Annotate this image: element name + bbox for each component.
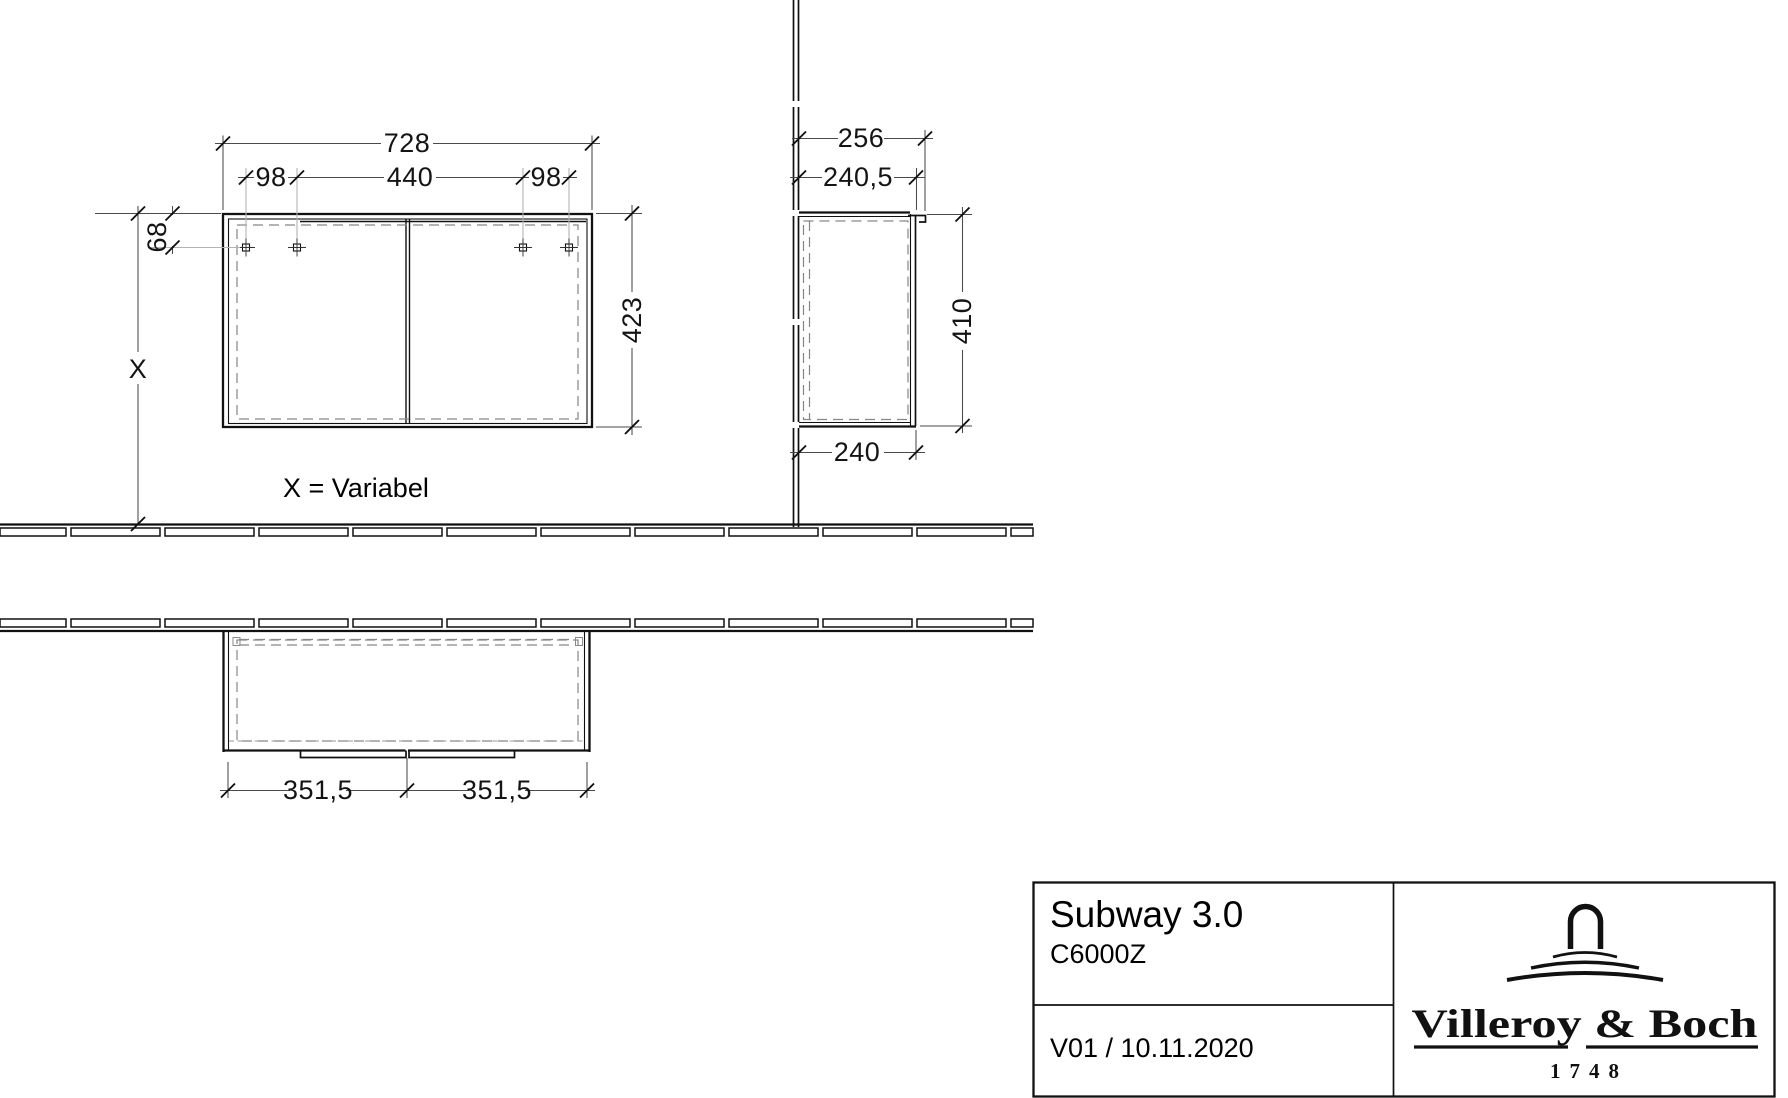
model-number: C6000Z xyxy=(1050,939,1146,969)
front-hidden-carcass xyxy=(237,225,578,419)
dim-label-door-left: 351,5 xyxy=(283,775,353,805)
front-door-gap xyxy=(406,219,410,424)
side-carcass-edges xyxy=(799,214,911,426)
wall-hatch-segments xyxy=(0,619,1033,627)
version-date: V01 / 10.11.2020 xyxy=(1050,1033,1254,1063)
plan-cabinet-outline xyxy=(224,632,590,752)
brand-logo: Villeroy & Boch 1748 xyxy=(1412,907,1759,1083)
mounting-holes xyxy=(237,239,578,257)
dim-label-side-height: 410 xyxy=(947,298,977,345)
wall-line xyxy=(794,0,799,527)
side-carcass-top-bottom xyxy=(799,213,916,427)
dim-label-hole-right: 98 xyxy=(530,162,561,192)
logo-ripple-medium-icon xyxy=(1531,962,1639,968)
dim-label-depth-carcass: 240 xyxy=(834,437,881,467)
title-block: Subway 3.0 C6000Z V01 / 10.11.2020 Ville… xyxy=(1034,883,1775,1097)
side-hidden-carcass xyxy=(804,221,909,420)
plan-hidden-carcass xyxy=(237,640,578,741)
dim-label-width-total: 728 xyxy=(384,128,431,158)
front-cabinet-outline xyxy=(223,214,592,427)
plan-view: 351,5 351,5 xyxy=(220,632,595,805)
hole-crosshairs xyxy=(237,239,578,257)
front-dimension-ticks xyxy=(131,137,639,532)
dim-label-height: 423 xyxy=(617,297,647,344)
plan-rail-end-right xyxy=(576,638,583,646)
front-door-outline xyxy=(229,219,588,424)
brand-year: 1748 xyxy=(1550,1059,1628,1083)
wall-line-plan xyxy=(0,619,1033,631)
brand-name: Villeroy & Boch xyxy=(1412,1001,1758,1046)
variable-height-note: X = Variabel xyxy=(283,473,429,503)
floor-hatch-segments xyxy=(0,528,1033,536)
floor-line-elevation xyxy=(0,525,1033,537)
dim-label-hole-top: 68 xyxy=(142,221,172,252)
technical-drawing: 728 98 440 98 68 X 423 X = Variabel 256 … xyxy=(0,0,1788,1098)
dim-label-depth-total: 256 xyxy=(838,123,885,153)
dim-label-door-right: 351,5 xyxy=(462,775,532,805)
dim-label-depth-front: 240,5 xyxy=(823,162,893,192)
dim-label-hole-center: 440 xyxy=(387,162,434,192)
logo-ripple-small-icon xyxy=(1553,953,1617,958)
plan-side-panels xyxy=(229,632,585,750)
product-name: Subway 3.0 xyxy=(1050,894,1243,935)
drawing-canvas: 728 98 440 98 68 X 423 X = Variabel 256 … xyxy=(0,0,1788,1098)
logo-ripple-large-icon xyxy=(1507,973,1663,980)
logo-arch-icon xyxy=(1571,907,1601,949)
plan-dimension-lines xyxy=(220,758,595,798)
side-view: 256 240,5 410 240 xyxy=(790,0,977,527)
front-dimension-lines xyxy=(95,136,642,525)
dim-label-floor-distance: X xyxy=(129,354,148,384)
front-view: 728 98 440 98 68 X 423 X = Variabel xyxy=(95,128,647,531)
dim-label-hole-left: 98 xyxy=(255,162,286,192)
